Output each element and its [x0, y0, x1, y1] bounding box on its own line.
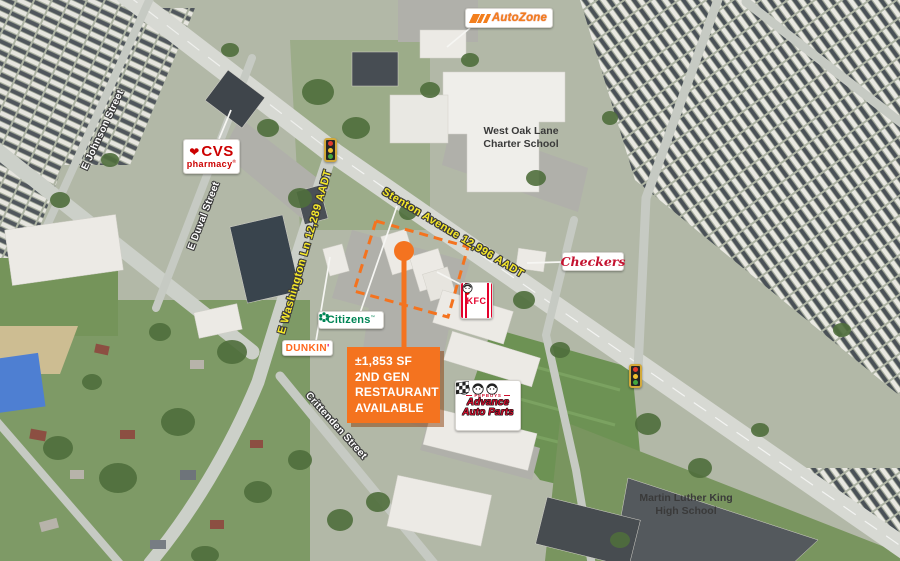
cvs-sub-word: pharmacy — [187, 159, 233, 169]
traffic-light-icon — [324, 138, 337, 162]
aerial-retail-map: Stenton Avenue 12,996 AADT E Washington … — [0, 0, 900, 561]
cvs-pharmacy-text: pharmacy® — [187, 160, 236, 169]
cvs-registered-mark: ® — [233, 159, 237, 164]
callout-line-available: AVAILABLE — [355, 401, 436, 417]
traffic-light-icon — [629, 364, 642, 388]
advance-checkered-flag-icon — [456, 381, 469, 395]
dunkin-label: DUNKIN' — [282, 340, 333, 356]
cvs-name: CVS — [201, 144, 233, 159]
autozone-stripes-icon — [471, 14, 489, 23]
autozone-building — [420, 30, 466, 58]
dunkin-name: DUNKIN — [286, 343, 327, 354]
citizens-name: Citizens™ — [327, 314, 375, 326]
property-marker — [394, 241, 414, 261]
callout-line-restaurant: RESTAURANT — [355, 385, 436, 401]
advance-name-line2: Auto Parts — [462, 408, 514, 418]
citizens-wordmark: Citizens — [327, 314, 371, 326]
callout-line-gen: 2ND GEN — [355, 370, 436, 386]
checkers-name: Checkers — [561, 254, 626, 269]
cvs-heart-icon: ❤ — [189, 146, 199, 158]
kfc-name: KFC — [467, 296, 487, 306]
kfc-colonel-icon — [461, 283, 474, 296]
checkers-building — [516, 248, 547, 272]
advance-auto-parts-label: PEPBOYS Advance Auto Parts — [455, 380, 521, 431]
autozone-name: AutoZone — [492, 12, 547, 24]
kfc-label: KFC — [460, 282, 493, 319]
blue-courts — [0, 353, 46, 413]
availability-callout: ±1,853 SF 2ND GEN RESTAURANT AVAILABLE — [347, 347, 440, 423]
leader-line-checkers — [527, 262, 562, 263]
citizens-bank-label: Citizens™ — [318, 311, 384, 329]
checkers-label: Checkers — [562, 252, 624, 271]
citizens-trademark: ™ — [371, 314, 376, 319]
dunkin-apostrophe: ' — [327, 343, 329, 354]
cvs-label: ❤ CVS pharmacy® — [183, 139, 240, 174]
citizens-flower-icon — [319, 312, 329, 322]
callout-line-size: ±1,853 SF — [355, 354, 436, 370]
aerial-imagery — [0, 0, 900, 561]
autozone-label: AutoZone — [465, 8, 553, 28]
kfc-stripes-icon — [487, 283, 493, 318]
